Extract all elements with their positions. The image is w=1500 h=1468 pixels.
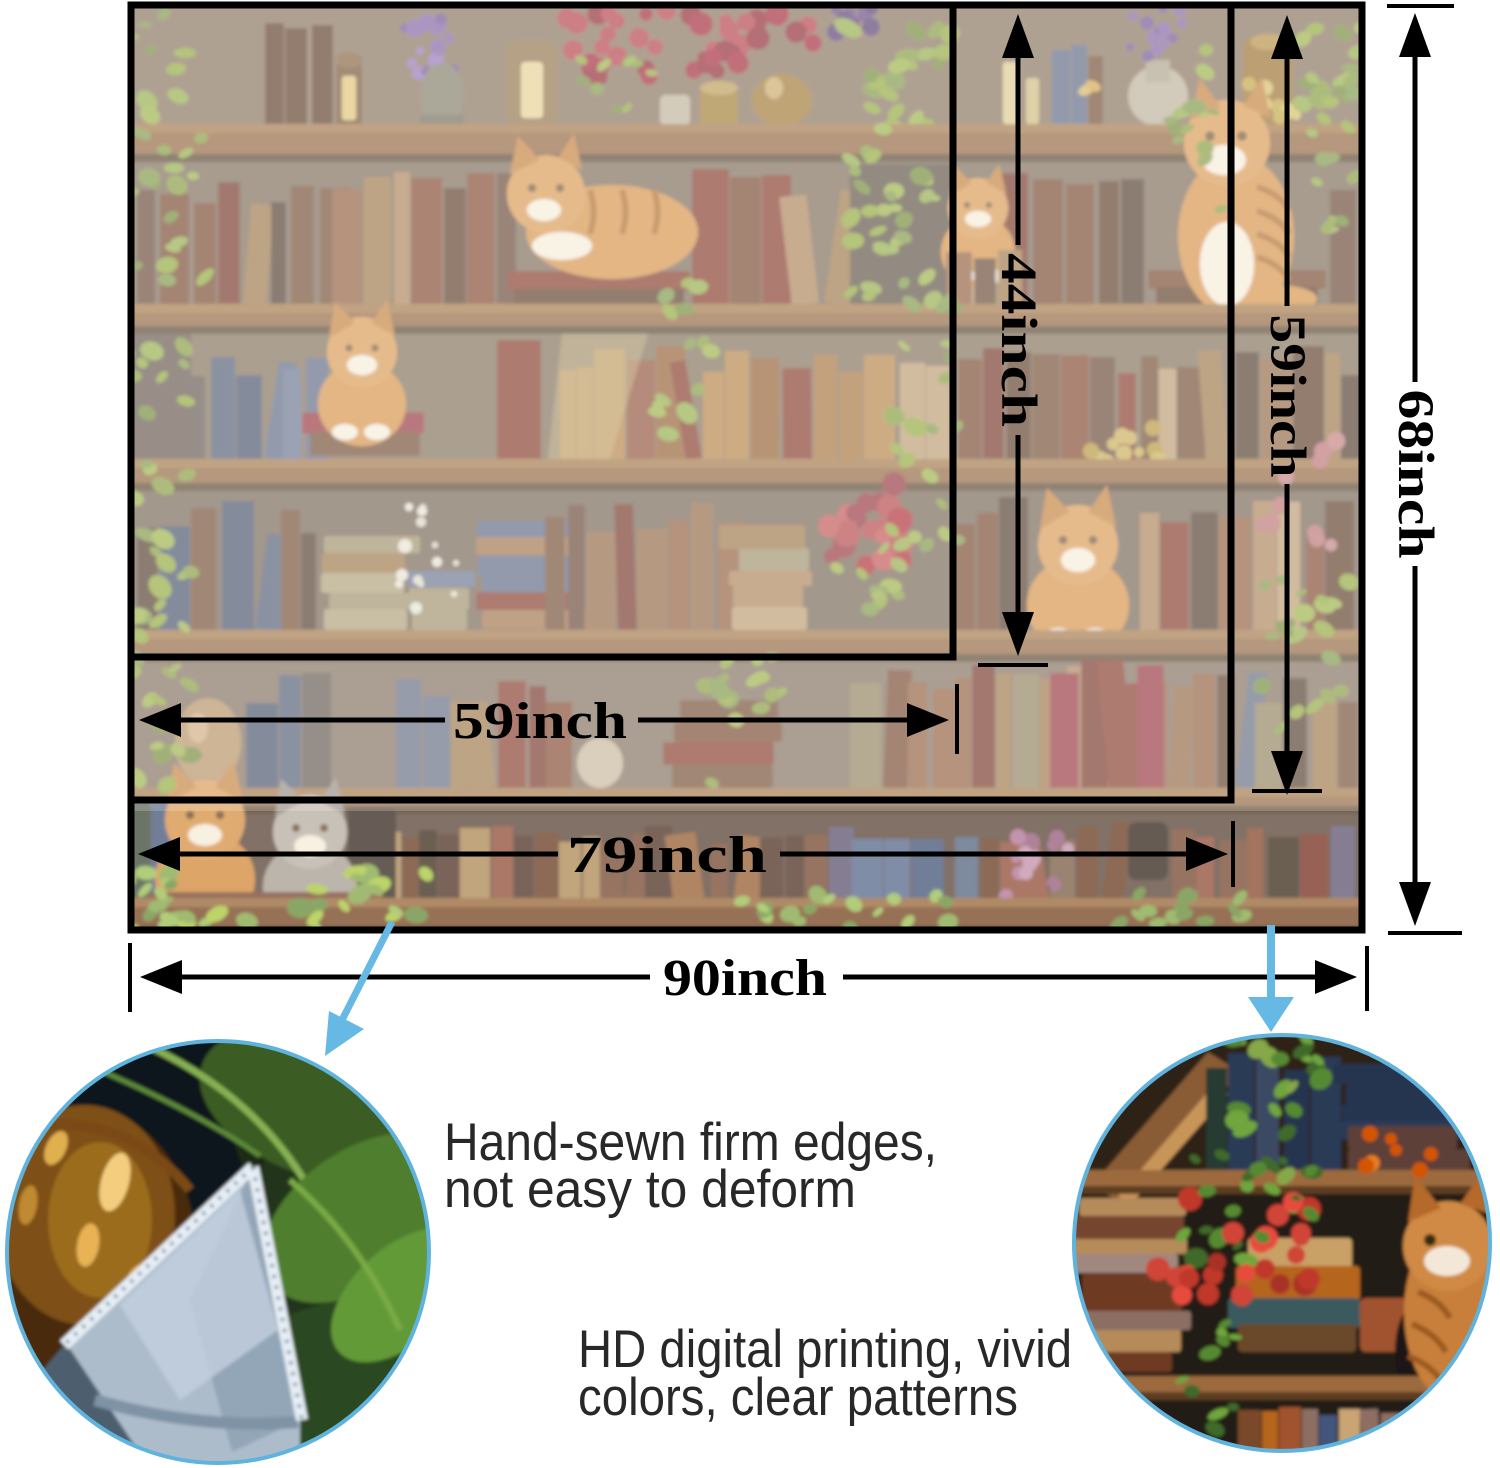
svg-text:59inch: 59inch [1259, 315, 1315, 478]
svg-text:colors, clear patterns: colors, clear patterns [578, 1368, 1018, 1427]
svg-text:90inch: 90inch [663, 950, 827, 1007]
svg-text:79inch: 79inch [567, 827, 767, 884]
svg-text:68inch: 68inch [1387, 390, 1443, 559]
svg-text:not easy to deform: not easy to deform [444, 1160, 856, 1219]
svg-text:44inch: 44inch [990, 253, 1046, 427]
svg-text:59inch: 59inch [453, 693, 627, 750]
